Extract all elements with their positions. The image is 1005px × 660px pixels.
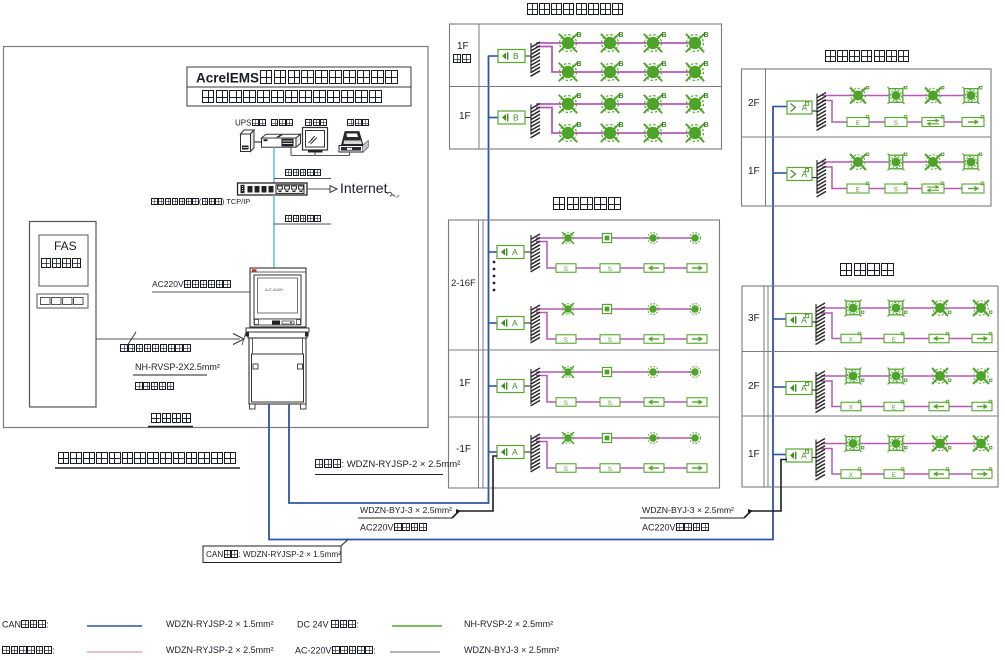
svg-text:B: B: [704, 61, 709, 68]
svg-text:A: A: [512, 247, 518, 257]
svg-text:B: B: [577, 32, 582, 39]
svg-text:S: S: [608, 337, 612, 344]
svg-text:B: B: [662, 93, 667, 100]
svg-text:S: S: [894, 186, 898, 193]
svg-text:B: B: [577, 93, 582, 100]
svg-text:A: A: [512, 318, 518, 328]
svg-text:A-C-A100: A-C-A100: [265, 287, 283, 292]
svg-text:A: A: [801, 451, 807, 461]
svg-text:B: B: [513, 113, 519, 123]
svg-text:A: A: [802, 169, 808, 179]
svg-text:X: X: [849, 336, 853, 343]
svg-text:E: E: [856, 120, 860, 127]
svg-text:B: B: [619, 93, 624, 100]
svg-text:S: S: [564, 337, 568, 344]
svg-text:X: X: [849, 472, 853, 479]
svg-text:E: E: [892, 404, 896, 411]
svg-text:B: B: [619, 32, 624, 39]
svg-text:S: S: [564, 466, 568, 473]
svg-text:B: B: [577, 122, 582, 129]
svg-text:B: B: [704, 93, 709, 100]
svg-text:B: B: [662, 122, 667, 129]
svg-text:E: E: [856, 186, 860, 193]
svg-text:S: S: [894, 120, 898, 127]
svg-text:B: B: [619, 122, 624, 129]
svg-text:E: E: [892, 472, 896, 479]
svg-text:B: B: [619, 61, 624, 68]
svg-text:X: X: [849, 404, 853, 411]
svg-text:S: S: [608, 266, 612, 273]
svg-text:B: B: [704, 32, 709, 39]
svg-text:A: A: [802, 103, 808, 113]
svg-text:B: B: [577, 61, 582, 68]
svg-text:B: B: [662, 32, 667, 39]
svg-text:S: S: [564, 266, 568, 273]
svg-text:S: S: [564, 400, 568, 407]
svg-text:B: B: [704, 122, 709, 129]
svg-text:A: A: [801, 315, 807, 325]
svg-text:B: B: [513, 51, 519, 61]
svg-text:B: B: [662, 61, 667, 68]
svg-text:S: S: [608, 400, 612, 407]
svg-text:A: A: [801, 383, 807, 393]
svg-text:A: A: [512, 447, 518, 457]
svg-text:S: S: [608, 466, 612, 473]
svg-text:E: E: [892, 336, 896, 343]
svg-text:A: A: [512, 381, 518, 391]
